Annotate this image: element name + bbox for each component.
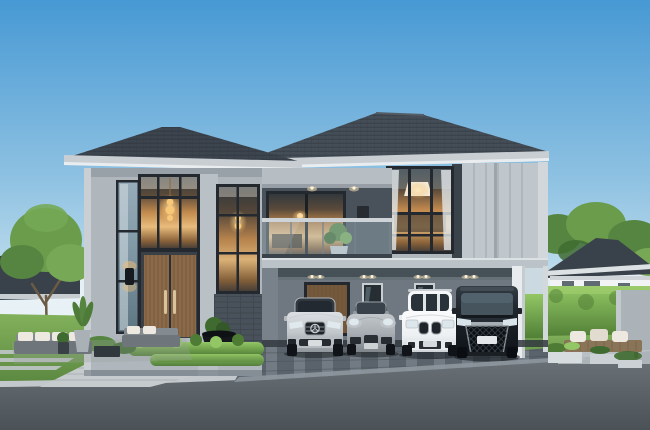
headlight: [383, 319, 393, 326]
cushion: [570, 331, 586, 342]
carport-side-wall: [262, 268, 278, 346]
headlight: [349, 319, 359, 326]
cushion: [35, 332, 50, 341]
bed-headboard: [394, 214, 446, 232]
car-lexus: [452, 286, 522, 362]
carport-ceiling-shadow: [262, 268, 548, 277]
headlight: [442, 320, 454, 328]
narrow-window: [116, 180, 140, 334]
kidney-grille: [432, 322, 442, 334]
coffee-table: [94, 346, 120, 357]
plant-pot: [74, 330, 91, 352]
door-handle: [164, 290, 167, 314]
wheel: [333, 344, 343, 356]
front-intake: [381, 337, 392, 344]
bedroom-window: [386, 166, 454, 254]
cushion: [127, 326, 140, 334]
cushion: [143, 326, 156, 334]
side-mirror: [516, 308, 522, 314]
cushion: [18, 332, 33, 341]
door-handle: [173, 290, 176, 314]
car-bmw: [399, 289, 461, 359]
curtain: [120, 184, 128, 330]
handrail: [257, 218, 393, 222]
wheel: [457, 347, 467, 358]
plant-pot: [58, 342, 69, 354]
windshield: [356, 302, 386, 315]
glass-railing: [257, 218, 393, 259]
wheel: [386, 344, 395, 355]
wheel: [402, 345, 412, 356]
cushion: [590, 329, 608, 341]
corner-post: [543, 266, 548, 352]
license-plate: [364, 343, 378, 349]
wheel: [347, 344, 356, 355]
wheel: [507, 347, 517, 358]
license-plate: [423, 341, 437, 347]
siding-panels: [462, 163, 538, 268]
front-intake: [364, 335, 378, 344]
license-plate: [308, 340, 322, 346]
stair-window: [216, 184, 260, 294]
corner-trim: [538, 162, 548, 268]
windshield: [411, 294, 449, 311]
license-plate: [477, 336, 497, 344]
balcony: [257, 168, 393, 259]
front-intake: [350, 337, 361, 344]
cushion: [612, 331, 628, 342]
house-rendering: Architectural rendering: modern two-stor…: [0, 0, 650, 430]
headlight: [406, 320, 418, 328]
facade-ground-shadow: [84, 370, 262, 376]
side-mirror: [452, 308, 458, 314]
rendering-canvas: Architectural rendering: modern two-stor…: [0, 0, 650, 430]
wheel: [287, 344, 297, 356]
grille: [305, 322, 325, 335]
kidney-grille: [419, 322, 429, 334]
